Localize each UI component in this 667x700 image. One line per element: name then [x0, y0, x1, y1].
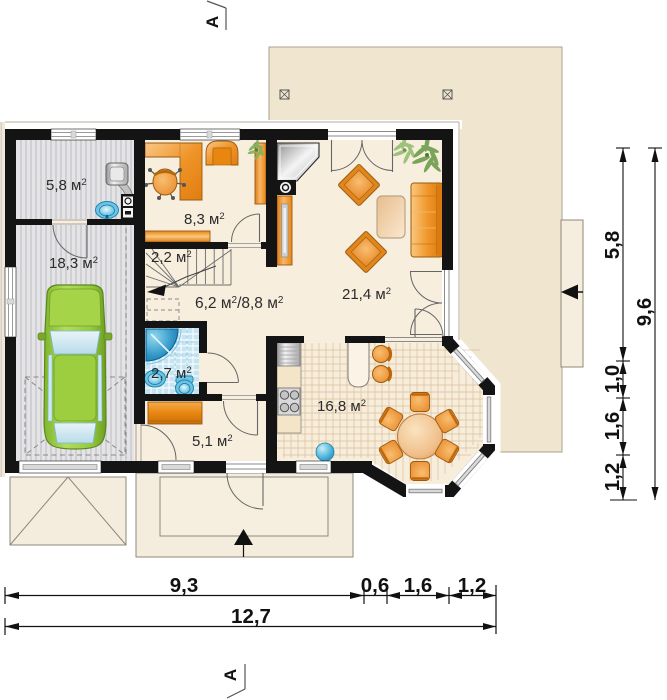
svg-text:A: A — [221, 669, 240, 681]
svg-text:1,6: 1,6 — [404, 574, 433, 597]
svg-text:16,8 м2: 16,8 м2 — [317, 398, 366, 415]
svg-text:1,0: 1,0 — [601, 365, 624, 394]
svg-text:2,2 м2: 2,2 м2 — [151, 249, 192, 266]
svg-text:8,3 м2: 8,3 м2 — [184, 211, 225, 228]
svg-text:5,8: 5,8 — [601, 231, 624, 260]
svg-text:6,2 м2/8,8 м2: 6,2 м2/8,8 м2 — [195, 295, 284, 312]
svg-text:9,3: 9,3 — [170, 574, 199, 597]
svg-text:5,1 м2: 5,1 м2 — [192, 433, 233, 450]
svg-text:1,2: 1,2 — [458, 574, 487, 597]
svg-text:12,7: 12,7 — [231, 605, 271, 628]
svg-text:1,6: 1,6 — [601, 412, 624, 441]
svg-text:18,3 м2: 18,3 м2 — [49, 255, 98, 272]
svg-text:A: A — [203, 16, 222, 28]
svg-text:9,6: 9,6 — [633, 298, 656, 327]
svg-text:0,6: 0,6 — [361, 574, 390, 597]
svg-text:1,2: 1,2 — [601, 463, 624, 492]
svg-text:21,4 м2: 21,4 м2 — [342, 286, 391, 303]
svg-text:2,7 м2: 2,7 м2 — [151, 365, 192, 382]
svg-text:5,8 м2: 5,8 м2 — [46, 177, 87, 194]
